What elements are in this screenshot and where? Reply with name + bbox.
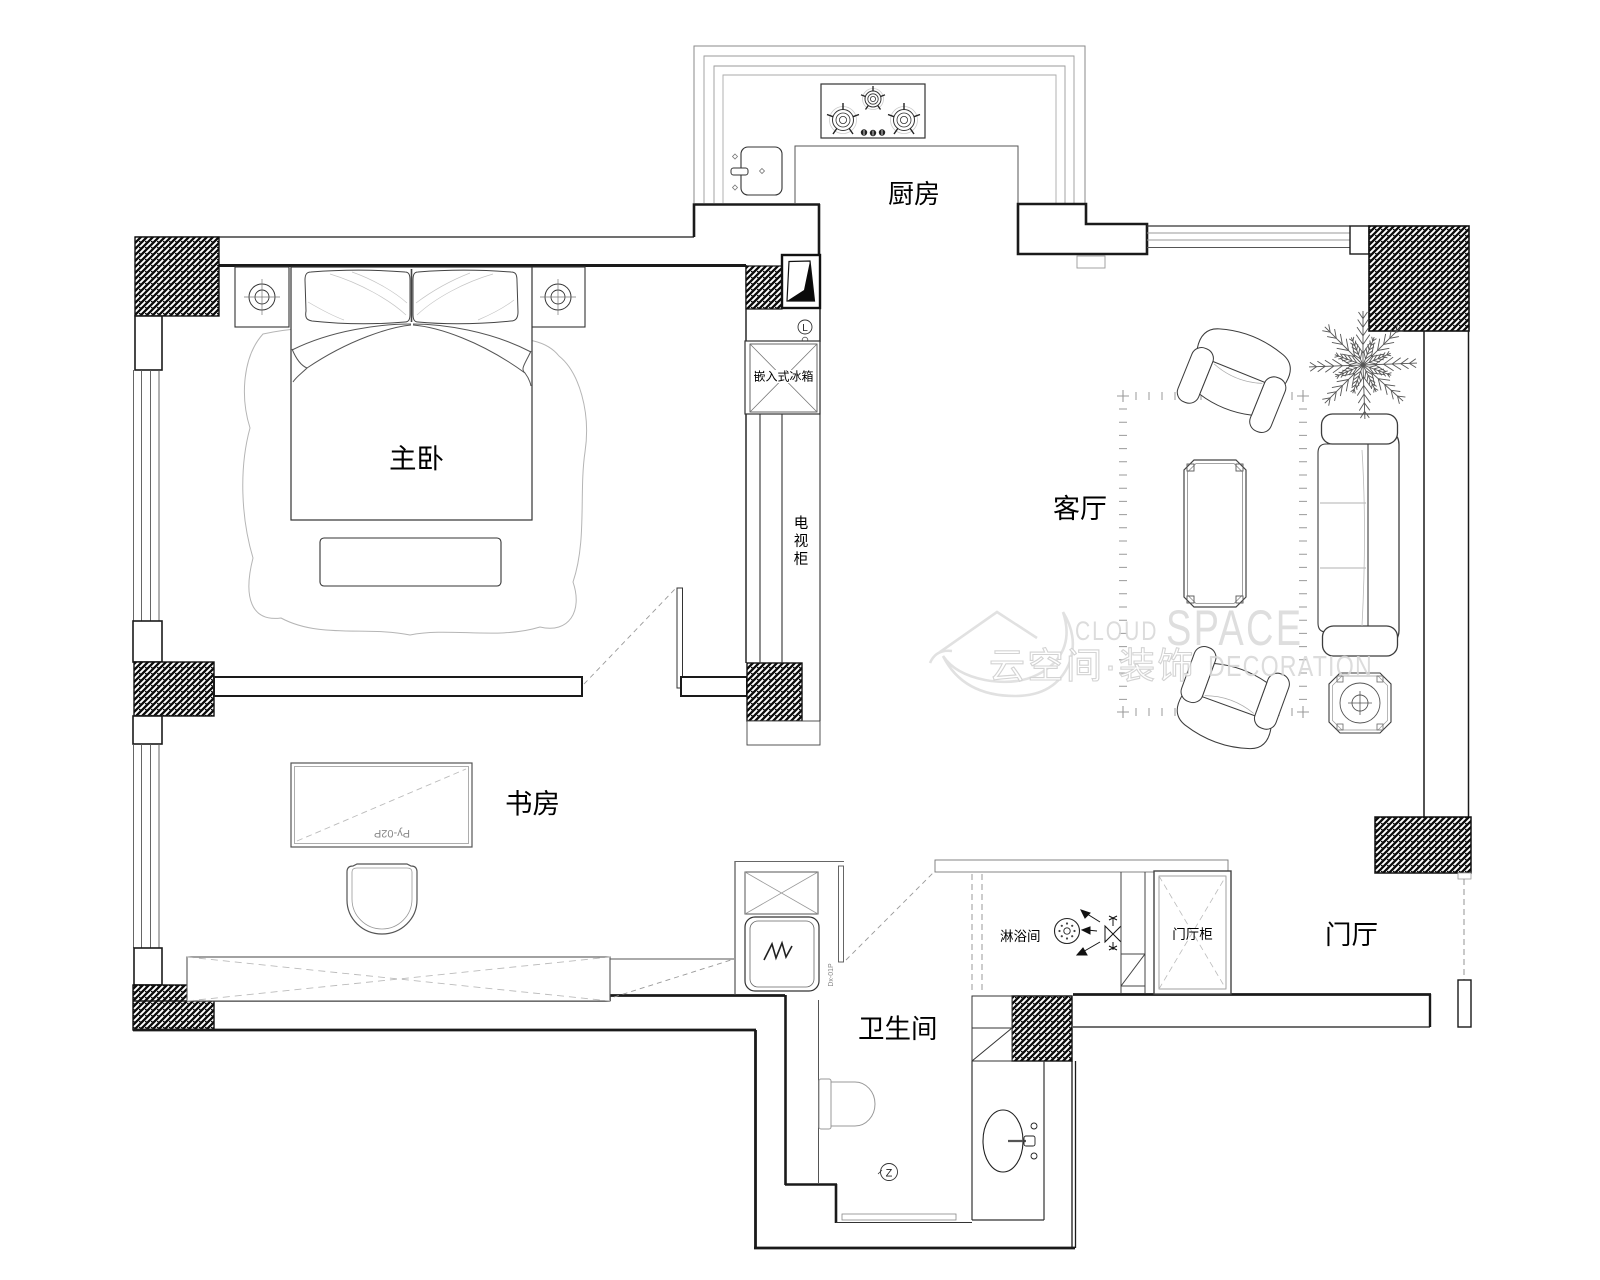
svg-text:主卧: 主卧 — [389, 443, 444, 474]
svg-text:DECORATION: DECORATION — [1208, 649, 1373, 682]
svg-text:视: 视 — [794, 533, 809, 550]
svg-text:Py-02P: Py-02P — [374, 827, 410, 839]
svg-text:L: L — [802, 323, 808, 334]
svg-text:卫生间: 卫生间 — [858, 1014, 938, 1044]
svg-text:云空间·装饰: 云空间·装饰 — [989, 645, 1196, 686]
svg-text:Z: Z — [886, 1168, 893, 1180]
svg-text:CLOUD: CLOUD — [1075, 617, 1158, 647]
svg-text:淋浴间: 淋浴间 — [1000, 929, 1041, 944]
svg-text:Dx-01P: Dx-01P — [828, 963, 835, 987]
svg-text:书房: 书房 — [505, 788, 560, 819]
svg-text:门厅柜: 门厅柜 — [1172, 927, 1213, 942]
svg-text:电: 电 — [794, 515, 809, 532]
svg-text:嵌入式冰箱: 嵌入式冰箱 — [753, 369, 813, 384]
svg-text:柜: 柜 — [794, 551, 809, 568]
svg-text:门厅: 门厅 — [1325, 920, 1378, 950]
svg-text:厨房: 厨房 — [888, 179, 940, 209]
svg-text:客厅: 客厅 — [1053, 494, 1107, 524]
